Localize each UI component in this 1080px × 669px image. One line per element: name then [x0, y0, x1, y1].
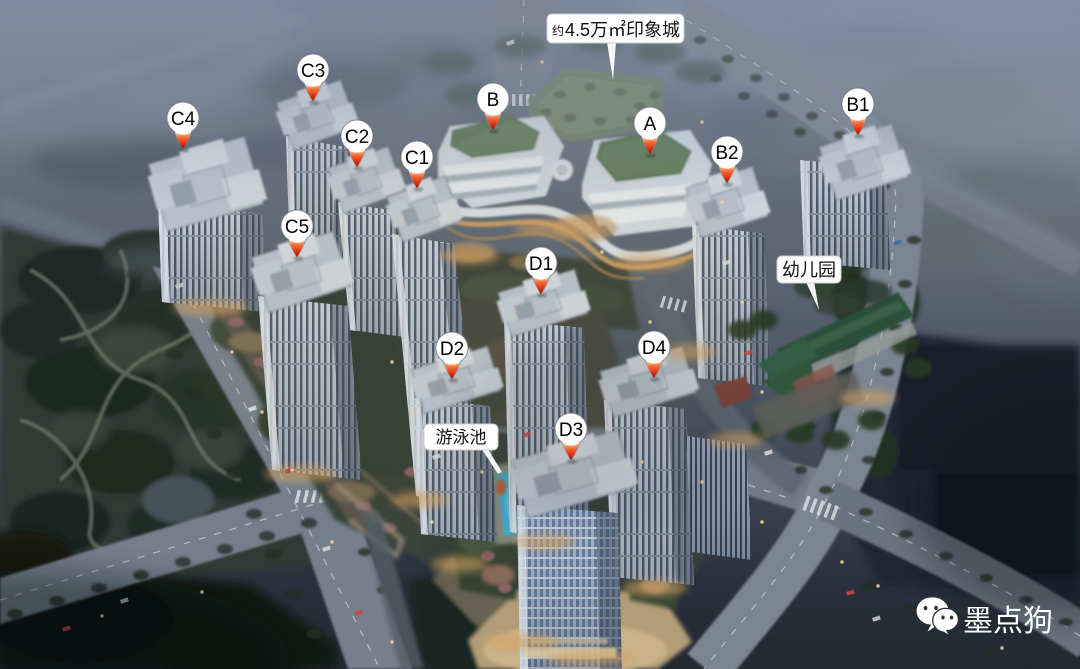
svg-text:C3: C3 — [301, 61, 325, 82]
svg-text:D3: D3 — [559, 420, 583, 441]
svg-text:幼儿园: 幼儿园 — [782, 260, 836, 280]
svg-text:C2: C2 — [345, 127, 369, 148]
svg-text:C4: C4 — [171, 109, 196, 130]
svg-text:C1: C1 — [405, 148, 429, 169]
svg-text:游泳池: 游泳池 — [436, 428, 487, 447]
svg-text:4.5万㎡印象城: 4.5万㎡印象城 — [565, 19, 680, 40]
svg-text:B1: B1 — [846, 95, 869, 116]
svg-text:B: B — [487, 90, 500, 111]
svg-text:C5: C5 — [285, 217, 309, 238]
svg-text:B2: B2 — [715, 143, 738, 164]
svg-text:约: 约 — [552, 23, 564, 38]
svg-text:D2: D2 — [440, 339, 464, 360]
svg-text:D1: D1 — [529, 254, 553, 275]
svg-text:D4: D4 — [642, 338, 667, 359]
svg-text:墨点狗: 墨点狗 — [963, 605, 1053, 638]
svg-text:A: A — [644, 114, 657, 135]
